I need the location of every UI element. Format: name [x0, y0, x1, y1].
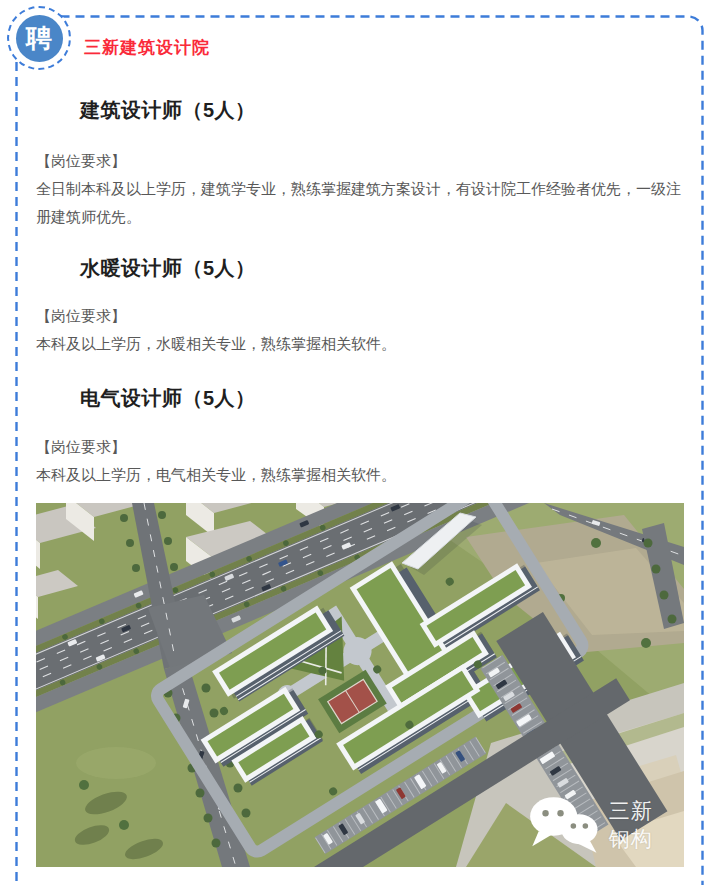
requirements-text: 全日制本科及以上学历，建筑学专业，熟练掌握建筑方案设计，有设计院工作经验者优先，… — [36, 175, 686, 231]
watermark: 三新钢构 — [528, 795, 658, 855]
requirements-label: 【岗位要求】 — [36, 147, 686, 175]
requirements-text: 本科及以上学历，电气相关专业，熟练掌握相关软件。 — [36, 461, 686, 489]
org-title: 三新建筑设计院 — [84, 36, 210, 59]
article-page: { "badge": {"label": "聘"}, "header": {"t… — [0, 0, 720, 885]
job-title-electrical: 电气设计师（5人） — [80, 385, 256, 412]
job-title-hvac: 水暖设计师（5人） — [80, 255, 256, 282]
hire-badge: 聘 — [16, 15, 63, 62]
job-title-architect: 建筑设计师（5人） — [80, 97, 256, 124]
requirements-text: 本科及以上学历，水暖相关专业，熟练掌握相关软件。 — [36, 330, 686, 358]
watermark-text: 三新钢构 — [609, 797, 658, 853]
campus-aerial-rendering[interactable]: 三新钢构 — [36, 503, 684, 867]
wechat-icon — [528, 795, 601, 855]
requirements-label: 【岗位要求】 — [36, 302, 686, 330]
hire-badge-ring: 聘 — [7, 6, 71, 70]
requirements-label: 【岗位要求】 — [36, 433, 686, 461]
